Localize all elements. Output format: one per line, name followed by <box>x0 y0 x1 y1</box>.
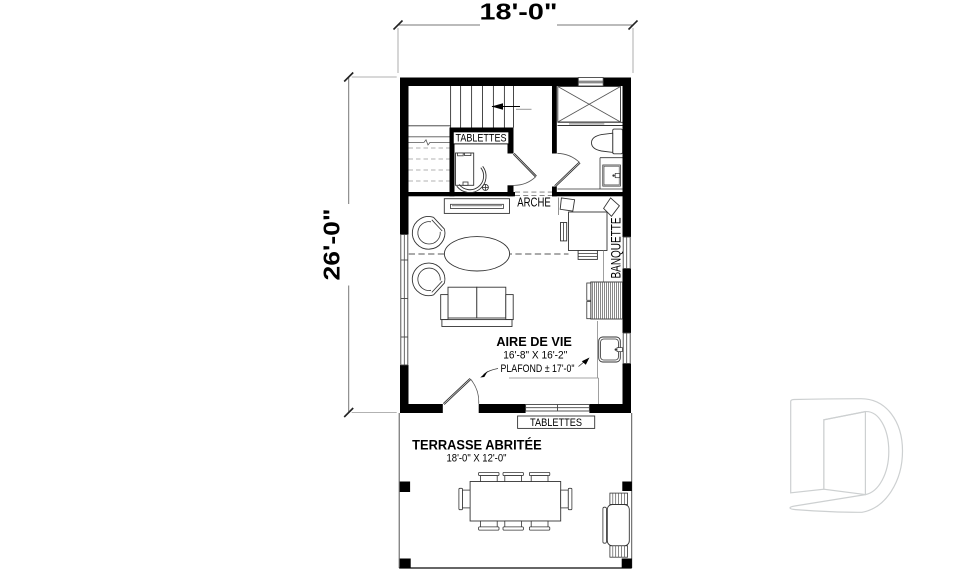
svg-text:TABLETTES: TABLETTES <box>456 133 507 145</box>
svg-text:26'-0": 26'-0" <box>319 209 345 281</box>
svg-text:16'-8" X 16'-2": 16'-8" X 16'-2" <box>503 349 567 361</box>
svg-text:18'-0" X 12'-0": 18'-0" X 12'-0" <box>447 453 507 465</box>
svg-text:18'-0": 18'-0" <box>480 0 558 25</box>
svg-text:TERRASSE ABRITÉE: TERRASSE ABRITÉE <box>412 437 542 452</box>
svg-text:ARCHE: ARCHE <box>517 195 551 209</box>
svg-text:PLAFOND ± 17'-0": PLAFOND ± 17'-0" <box>501 363 575 375</box>
svg-text:TABLETTES: TABLETTES <box>530 417 582 429</box>
svg-text:AIRE DE VIE: AIRE DE VIE <box>496 335 572 349</box>
svg-text:BANQUETTE: BANQUETTE <box>607 218 623 279</box>
